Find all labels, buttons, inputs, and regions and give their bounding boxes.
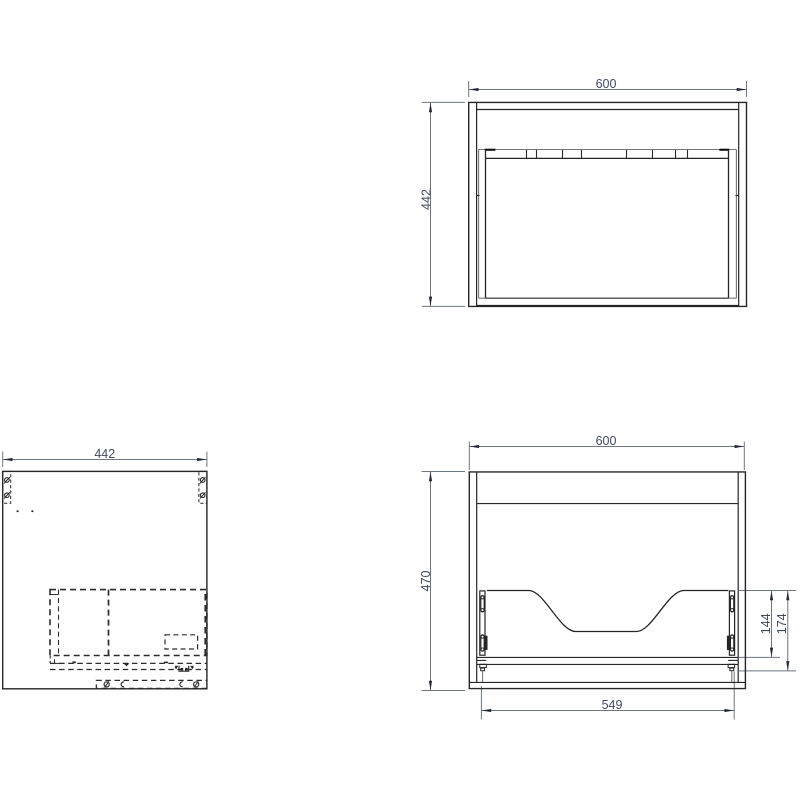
svg-text:174: 174 — [775, 613, 789, 634]
svg-text:600: 600 — [596, 434, 617, 448]
svg-text:600: 600 — [596, 77, 617, 91]
svg-text:144: 144 — [759, 613, 773, 634]
svg-text:442: 442 — [94, 447, 115, 461]
svg-text:442: 442 — [420, 189, 434, 210]
svg-text:549: 549 — [602, 698, 623, 712]
svg-text:470: 470 — [419, 571, 433, 592]
